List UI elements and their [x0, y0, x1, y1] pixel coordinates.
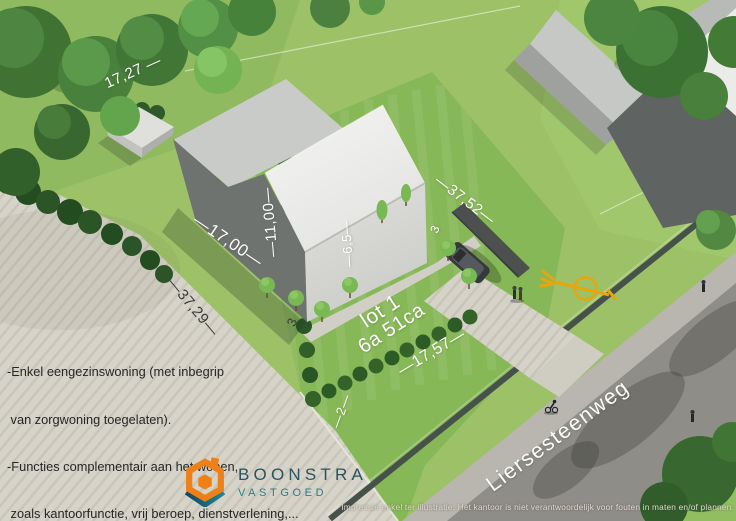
boonstra-logo-icon: [181, 457, 229, 507]
company-logo: BOONSTRA VASTGOED: [181, 457, 367, 507]
company-subtitle: VASTGOED: [238, 487, 367, 499]
dimension-6-5: —6,5—: [338, 220, 356, 268]
regulation-line: van zorgwoning toegelaten).: [7, 412, 299, 428]
disclaimer-text: Impressie enkel ter illustratie. Het kan…: [341, 502, 734, 512]
regulation-line: -Enkel eengezinswoning (met inbegrip: [7, 364, 299, 380]
regulation-line: zoals kantoorfunctie, vrij beroep, diens…: [7, 506, 299, 521]
company-name: BOONSTRA: [238, 465, 367, 485]
site-plan-image: 17,27 — —37,29— —17,00— —11,00— —6,5— —3…: [0, 0, 736, 521]
